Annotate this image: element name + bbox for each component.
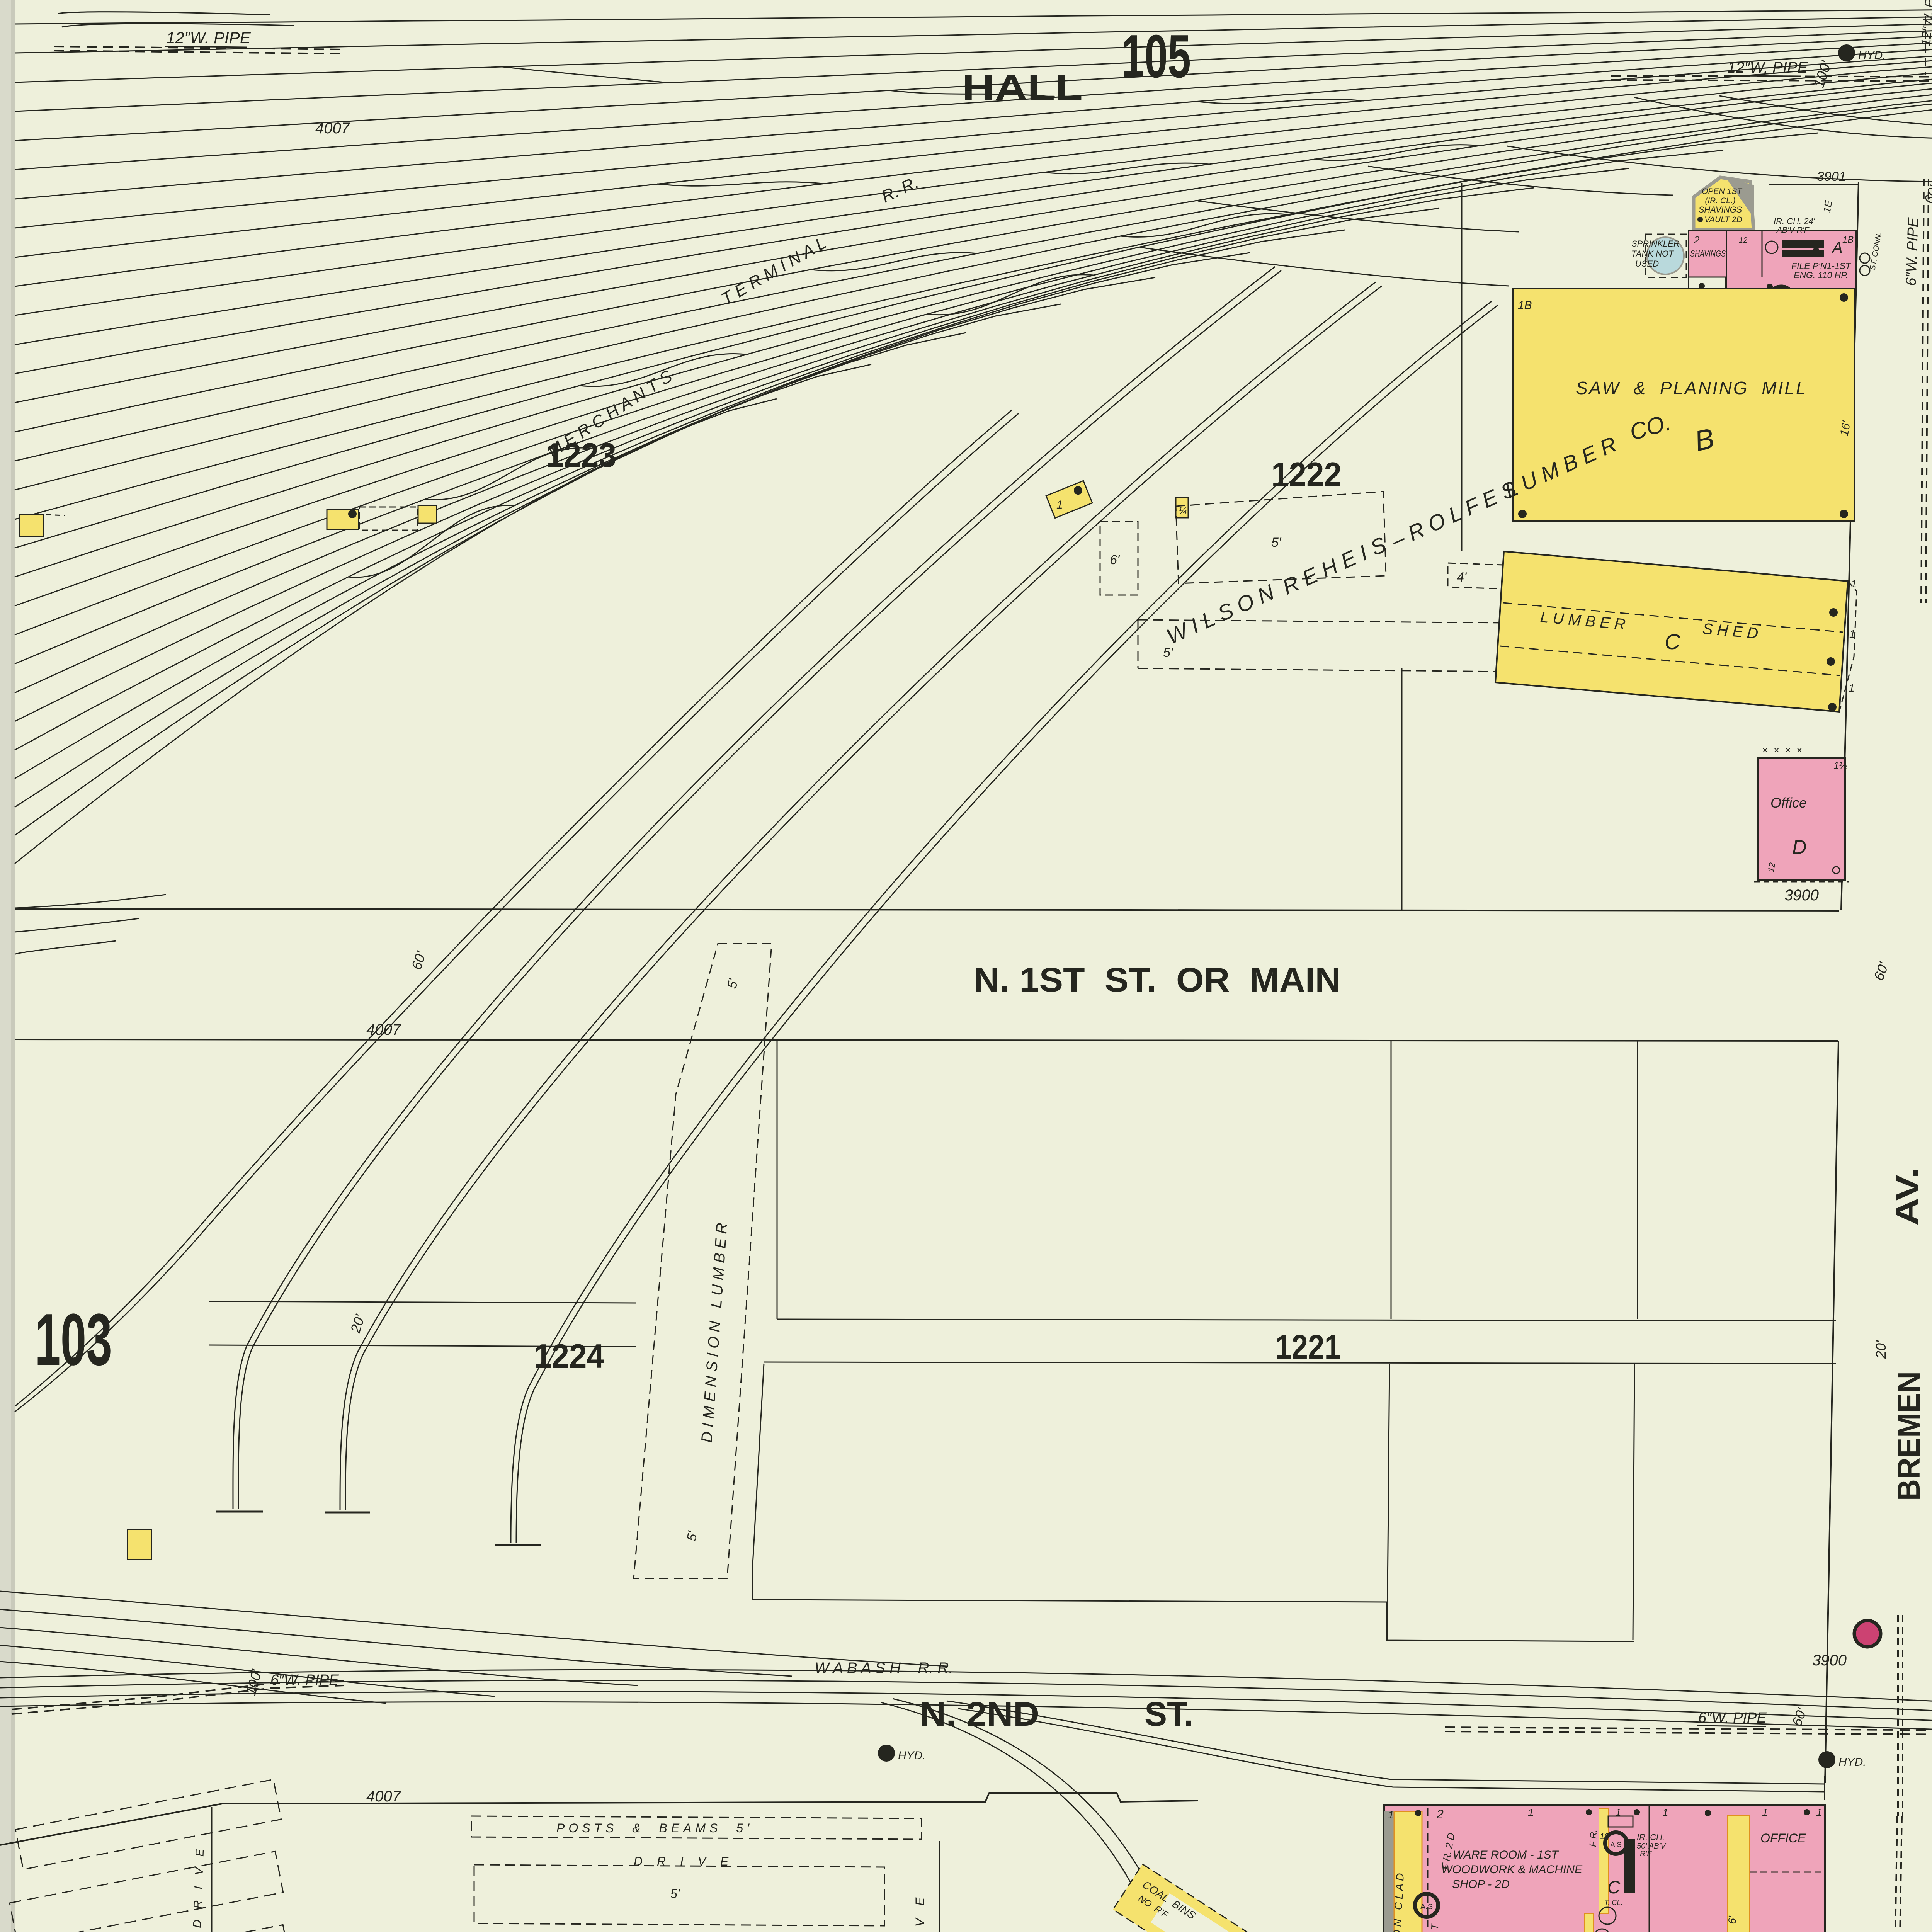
svg-text:N. 1​ST ST. OR MAIN: N. 1​ST ST. OR MAIN [974, 961, 1341, 999]
svg-text:HALL: HALL [962, 68, 1083, 107]
svg-text:S​HOP - 2​D: S​HOP - 2​D [1452, 1878, 1510, 1891]
svg-text:6': 6' [1110, 553, 1120, 567]
svg-text:1: 1 [1849, 682, 1855, 694]
svg-text:1: 1 [1528, 1806, 1534, 1818]
svg-text:FILE P'N1-1​ST: FILE P'N1-1​ST [1791, 261, 1852, 271]
svg-text:C: C [1665, 629, 1680, 654]
svg-text:1: 1 [1849, 628, 1855, 640]
svg-text:1221: 1221 [1275, 1328, 1341, 1366]
svg-text:W A B A S H R. R.: W A B A S H R. R. [815, 1660, 953, 1677]
svg-text:R'F: R'F [1640, 1850, 1652, 1858]
svg-text:1: 1 [1388, 1809, 1394, 1821]
svg-text:5': 5' [670, 1887, 680, 1901]
svg-text:12: 12 [1766, 862, 1777, 872]
svg-text:1224: 1224 [534, 1337, 604, 1375]
svg-text:20': 20' [1873, 1340, 1889, 1359]
svg-text:OPEN 1​ST: OPEN 1​ST [1702, 187, 1743, 196]
svg-text:1: 1 [1662, 1806, 1668, 1818]
svg-text:4007: 4007 [366, 1021, 401, 1038]
svg-text:SHAVINGS: SHAVINGS [1699, 205, 1742, 214]
svg-text:3900: 3900 [1784, 887, 1819, 904]
svg-text:IR. CH. 24': IR. CH. 24' [1774, 216, 1815, 226]
svg-text:1: 1 [1615, 1806, 1621, 1818]
svg-text:ENG. 110 H​P.: ENG. 110 H​P. [1794, 270, 1848, 280]
svg-text:16': 16' [1838, 420, 1853, 437]
svg-text:VAULT 2​D: VAULT 2​D [1704, 215, 1742, 224]
svg-text:103: 103 [35, 1299, 112, 1381]
svg-text:SHAVINGS: SHAVINGS [1690, 248, 1726, 259]
svg-text:12″W. PIPE: 12″W. PIPE [166, 29, 251, 47]
svg-text:USED: USED [1635, 259, 1659, 269]
svg-text:6″W. PIPE: 6″W. PIPE [1903, 217, 1922, 286]
svg-text:6': 6' [1726, 1915, 1738, 1924]
svg-text:1: 1 [1762, 1806, 1768, 1818]
svg-text:1½: 1½ [1833, 760, 1847, 771]
svg-text:12: 12 [1739, 236, 1747, 245]
svg-text:AV.: AV. [1890, 1168, 1925, 1226]
svg-text:A.S: A.S [1610, 1841, 1621, 1849]
svg-text:Office: Office [1770, 795, 1807, 811]
svg-text:12″W. PIPE: 12″W. PIPE [1727, 59, 1808, 76]
svg-text:1: 1 [1816, 1806, 1822, 1818]
svg-text:× × × ×: × × × × [1762, 744, 1802, 756]
svg-text:1B: 1B [1518, 299, 1532, 312]
svg-text:HYD.: HYD. [1838, 1756, 1866, 1769]
svg-text:HYD.: HYD. [898, 1749, 926, 1762]
svg-text:1: 1 [1851, 578, 1857, 590]
svg-text:HYD.: HYD. [1858, 49, 1886, 62]
svg-text:F R.: F R. [1588, 1829, 1599, 1847]
svg-text:12: 12 [1600, 1832, 1609, 1841]
svg-text:C: C [1607, 1877, 1621, 1897]
svg-text:A: A [1832, 239, 1843, 256]
svg-text:1222: 1222 [1271, 455, 1342, 493]
svg-text:5': 5' [1271, 535, 1282, 550]
svg-text:IR. CH.: IR. CH. [1637, 1832, 1665, 1842]
svg-text:SPRINKLER: SPRINKLER [1631, 239, 1680, 248]
svg-text:O​FFICE: O​FFICE [1760, 1831, 1806, 1845]
svg-text:4007: 4007 [366, 1788, 401, 1805]
svg-text:D R I V E: D R I V E [913, 1893, 927, 1932]
svg-text:S​AW & P​LANING M​ILL: S​AW & P​LANING M​ILL [1576, 378, 1808, 398]
svg-text:N. 2​ND: N. 2​ND [920, 1695, 1039, 1733]
svg-text:2: 2 [1694, 234, 1700, 246]
svg-text:50' AB'V: 50' AB'V [1637, 1842, 1666, 1850]
svg-text:105: 105 [1121, 22, 1191, 90]
svg-text:3900: 3900 [1812, 1652, 1847, 1669]
svg-text:D: D [1792, 836, 1807, 859]
svg-text:P​OSTS & B​EAMS 5': P​OSTS & B​EAMS 5' [556, 1821, 753, 1835]
svg-text:1B: 1B [1842, 235, 1854, 245]
svg-text:(IR. CL.): (IR. CL.) [1705, 196, 1735, 205]
svg-text:4': 4' [1457, 570, 1467, 585]
svg-text:1E: 1E [1821, 199, 1834, 214]
svg-text:A.S: A.S [1420, 1903, 1433, 1911]
svg-text:W​OODWORK & M​ACHINE: W​OODWORK & M​ACHINE [1441, 1863, 1583, 1876]
svg-text:4007: 4007 [315, 120, 350, 137]
svg-text:T. CL.: T. CL. [1604, 1899, 1622, 1906]
svg-text:3901: 3901 [1817, 169, 1846, 184]
svg-text:ST.: ST. [1145, 1695, 1193, 1733]
svg-text:2: 2 [1436, 1807, 1444, 1821]
svg-text:AB'V R'F: AB'V R'F [1776, 226, 1810, 235]
svg-text:1: 1 [1056, 498, 1063, 511]
svg-text:TANK NOT: TANK NOT [1631, 249, 1674, 259]
svg-text:W​ARE R​OOM - 1​ST: W​ARE R​OOM - 1​ST [1453, 1849, 1559, 1861]
svg-text:BREMEN: BREMEN [1891, 1371, 1927, 1501]
